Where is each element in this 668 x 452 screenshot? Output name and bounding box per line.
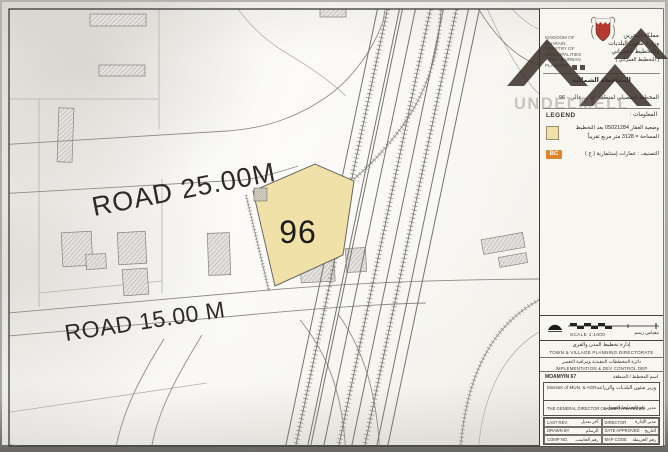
directorate-row: إدارة تخطيط المدن والقرى TOWN & VILLAGE … — [540, 341, 663, 357]
table-cell: COMP NO. رقم الحاسب — [544, 435, 602, 444]
parcel-boundaries — [2, 2, 539, 452]
title-block-panel: KINGDOM OF BAHRAIN MINISTRY OF MUNICIPAL… — [539, 9, 663, 446]
highway-hatched-edges — [246, 2, 539, 452]
plan-sheet: 96 ROAD 25.00M ROAD 15.00 M KINGDOM OF B… — [2, 2, 665, 445]
plot-96-crosshatch-marker — [254, 188, 267, 201]
legend-heading-ar: المعلومات : — [630, 112, 657, 118]
plan-title: المخطط التفصيلي لمنطقة جنوب عالي - 96 — [544, 95, 659, 101]
divider — [543, 108, 660, 109]
table-cell: MAP CODE رقم الخريطة — [602, 435, 660, 444]
director-signature-box: THE GENERAL DIRECTOR OF URBAN PLANNING م… — [543, 401, 660, 416]
road-25m-label: ROAD 25.00M — [89, 157, 278, 222]
footer-table: LAST REV. آخر تعديل DIRECTOR مدير الإدار… — [543, 417, 660, 445]
plot-96-number: 96 — [279, 214, 317, 250]
scale-bar — [568, 321, 660, 331]
scale-section: SCALE 1:1000 مقياس رسم — [540, 315, 663, 341]
plan-name-row: MOAMYIN 67 اسم المخطط / المنطقة — [540, 371, 663, 381]
scale-label: SCALE 1:1000 — [570, 332, 605, 337]
road-15m-label: ROAD 15.00 M — [63, 296, 227, 346]
scanned-site-plan-photo: 96 ROAD 25.00M ROAD 15.00 M KINGDOM OF B… — [0, 0, 668, 452]
divider — [543, 73, 660, 74]
table-cell: DIRECTOR مدير الإدارة — [602, 418, 660, 427]
table-cell: DATE APPROVED التاريخ — [602, 427, 660, 436]
plot-color-swatch — [546, 126, 559, 140]
legend-property-line: وضعية العقار 05021284 بعد التخطيط — [562, 125, 659, 131]
building-footprints — [57, 9, 528, 296]
legend-heading-en: LEGEND — [546, 112, 576, 119]
dev-control-row: دائرة المخططات التنفيذية ومراقبة التعمير… — [540, 357, 663, 371]
classification-badge: BC — [546, 150, 562, 159]
ministry-name-en: KINGDOM OF BAHRAIN MINISTRY OF MUNICIPAL… — [545, 35, 593, 69]
north-symbol-icon — [546, 320, 564, 334]
minister-signature-box: Minister of MUN. & AGR. وزير شئون البلدي… — [543, 382, 660, 401]
road-edges — [2, 2, 539, 452]
ministry-name-ar: مملكة البحرين وزارة شئون البلديات والتخط… — [595, 32, 659, 64]
classification-line: التصنيف : عمارات إستثمارية ( ج ) — [563, 151, 659, 157]
map-content: 96 ROAD 25.00M ROAD 15.00 M — [2, 2, 539, 452]
table-cell: DRAWN BY الرسام — [544, 427, 602, 436]
plot-96-polygon — [253, 164, 354, 286]
governorate-name: المحافظة الشمالية — [540, 76, 663, 84]
table-cell: LAST REV. آخر تعديل — [544, 418, 602, 427]
scale-label-ar: مقياس رسم — [634, 331, 659, 336]
legend-area-line: المساحة = 3128 متر مربع تقريباً — [562, 134, 659, 140]
highway-lines — [283, 2, 482, 452]
